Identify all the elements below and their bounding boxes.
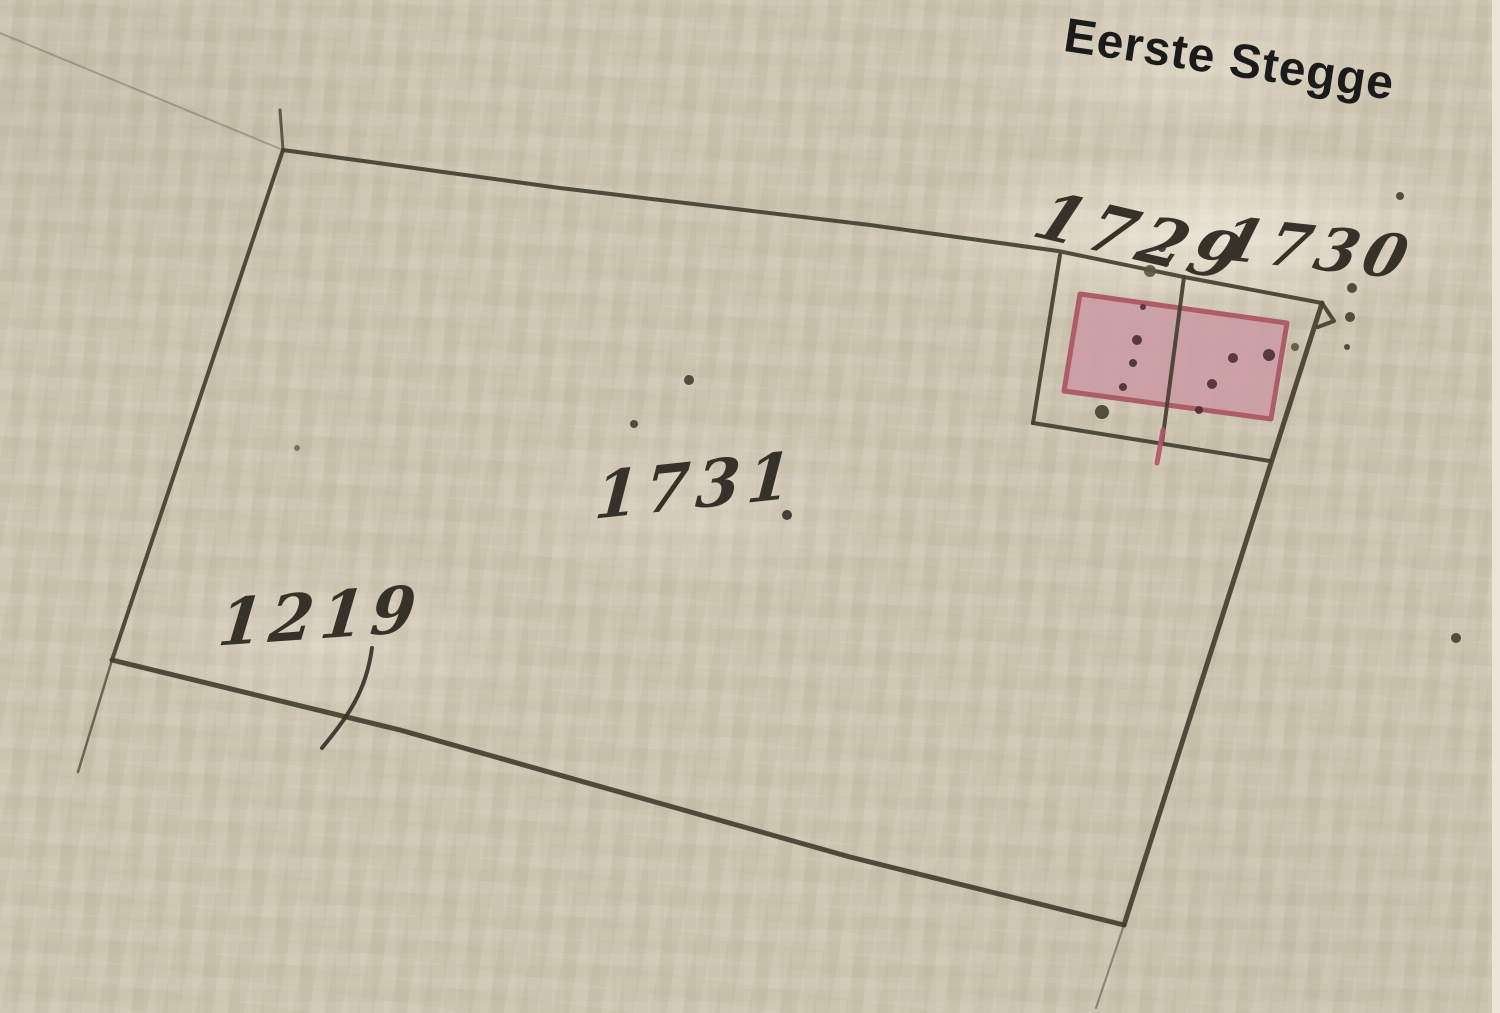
dot-top-right	[1396, 192, 1404, 200]
dot-below-building	[1095, 405, 1109, 419]
building-dot-4	[1119, 383, 1127, 391]
scan-page-edge	[1492, 0, 1500, 1013]
building-parcels-1729-1730	[1064, 294, 1287, 419]
dot-field-right	[1451, 633, 1461, 643]
left-boundary-upper-tick	[280, 110, 283, 150]
building-dot-8	[1195, 406, 1203, 414]
left-boundary-extension	[78, 660, 112, 772]
right-boundary-extension	[1096, 925, 1124, 1008]
divider-red-tail	[1157, 430, 1163, 463]
parcel-label-1219: 1219	[215, 578, 425, 657]
subparcel-left-edge	[1033, 255, 1060, 423]
building-dot-5	[1228, 353, 1238, 363]
faint-line-top-left	[0, 33, 283, 150]
parcel-label-1730: 1730	[1213, 210, 1420, 289]
digit-9-tail-of-1219	[322, 648, 372, 748]
building-dot-7	[1207, 379, 1217, 389]
building-dot-3	[1129, 359, 1137, 367]
corner-dot-b	[1345, 312, 1355, 322]
corner-dot-c	[1344, 344, 1350, 350]
building-dot-6	[1263, 349, 1275, 361]
dot-right-of-building	[1291, 343, 1299, 351]
field-dot-2	[630, 420, 638, 428]
field-speck	[294, 445, 300, 451]
building-dot-1	[1140, 304, 1146, 310]
building-dot-2	[1132, 335, 1142, 345]
cadastral-map-stage: Eerste Stegge 1729 1730 1731 1219	[0, 0, 1500, 1013]
subparcel-bottom-edge	[1033, 423, 1270, 461]
field-dot-1	[684, 375, 694, 385]
parcel-1731-boundary-bottom	[112, 660, 1124, 925]
